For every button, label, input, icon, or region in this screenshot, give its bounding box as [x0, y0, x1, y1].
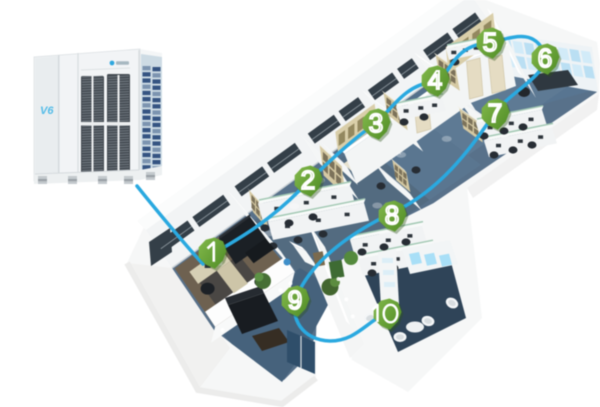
- svg-text:6: 6: [538, 43, 552, 73]
- svg-text:2: 2: [301, 165, 315, 195]
- svg-text:V6: V6: [40, 105, 54, 117]
- svg-text:7: 7: [488, 98, 502, 128]
- svg-text:8: 8: [385, 200, 399, 230]
- svg-text:5: 5: [483, 27, 497, 57]
- svg-text:4: 4: [428, 65, 442, 95]
- svg-text:9: 9: [288, 285, 302, 315]
- svg-text:3: 3: [369, 108, 383, 138]
